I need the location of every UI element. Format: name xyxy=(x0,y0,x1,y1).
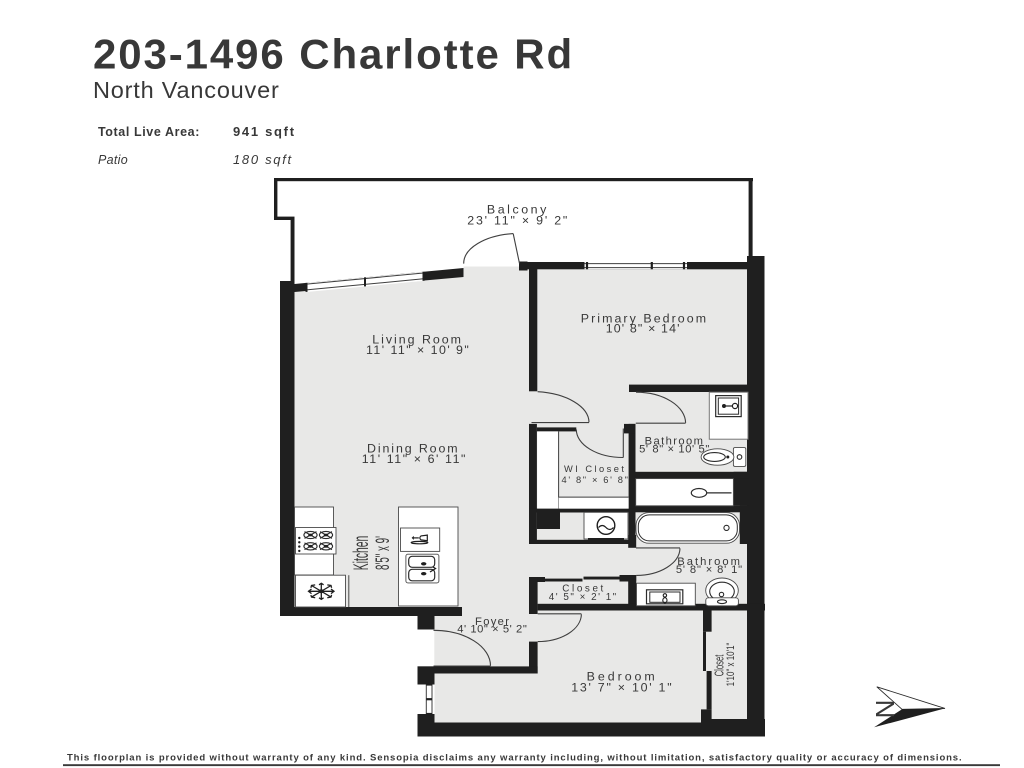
svg-text:13' 7" × 10' 1": 13' 7" × 10' 1" xyxy=(571,680,671,694)
svg-text:11' 11" × 6' 11": 11' 11" × 6' 11" xyxy=(362,452,466,466)
svg-text:Kitchen: Kitchen xyxy=(349,536,373,571)
svg-text:10' 8" × 14': 10' 8" × 14' xyxy=(606,321,680,335)
svg-text:4' 8" × 6' 8": 4' 8" × 6' 8" xyxy=(562,475,628,485)
svg-text:11' 11" × 10' 9": 11' 11" × 10' 9" xyxy=(366,343,469,357)
svg-text:941 sqft: 941 sqft xyxy=(233,124,296,139)
svg-text:4' 10" × 5' 2": 4' 10" × 5' 2" xyxy=(457,624,527,636)
svg-text:This floorplan is provided wit: This floorplan is provided without warra… xyxy=(67,753,963,764)
svg-text:8'5" x 9': 8'5" x 9' xyxy=(373,536,394,570)
svg-text:Total Live Area:: Total Live Area: xyxy=(98,125,200,139)
svg-text:Patio: Patio xyxy=(98,153,128,167)
svg-text:North Vancouver: North Vancouver xyxy=(93,77,280,103)
svg-text:203-1496 Charlotte Rd: 203-1496 Charlotte Rd xyxy=(93,31,574,78)
svg-text:180 sqft: 180 sqft xyxy=(233,152,293,167)
svg-text:1'10" x 10'1": 1'10" x 10'1" xyxy=(725,643,737,687)
svg-text:N: N xyxy=(870,700,900,719)
svg-text:23' 11" × 9' 2": 23' 11" × 9' 2" xyxy=(467,214,567,228)
svg-text:5' 8" × 10' 5": 5' 8" × 10' 5" xyxy=(639,444,709,456)
svg-text:4' 5" × 2' 1": 4' 5" × 2' 1" xyxy=(549,592,617,603)
svg-text:5' 8" × 8' 1": 5' 8" × 8' 1" xyxy=(676,564,742,576)
